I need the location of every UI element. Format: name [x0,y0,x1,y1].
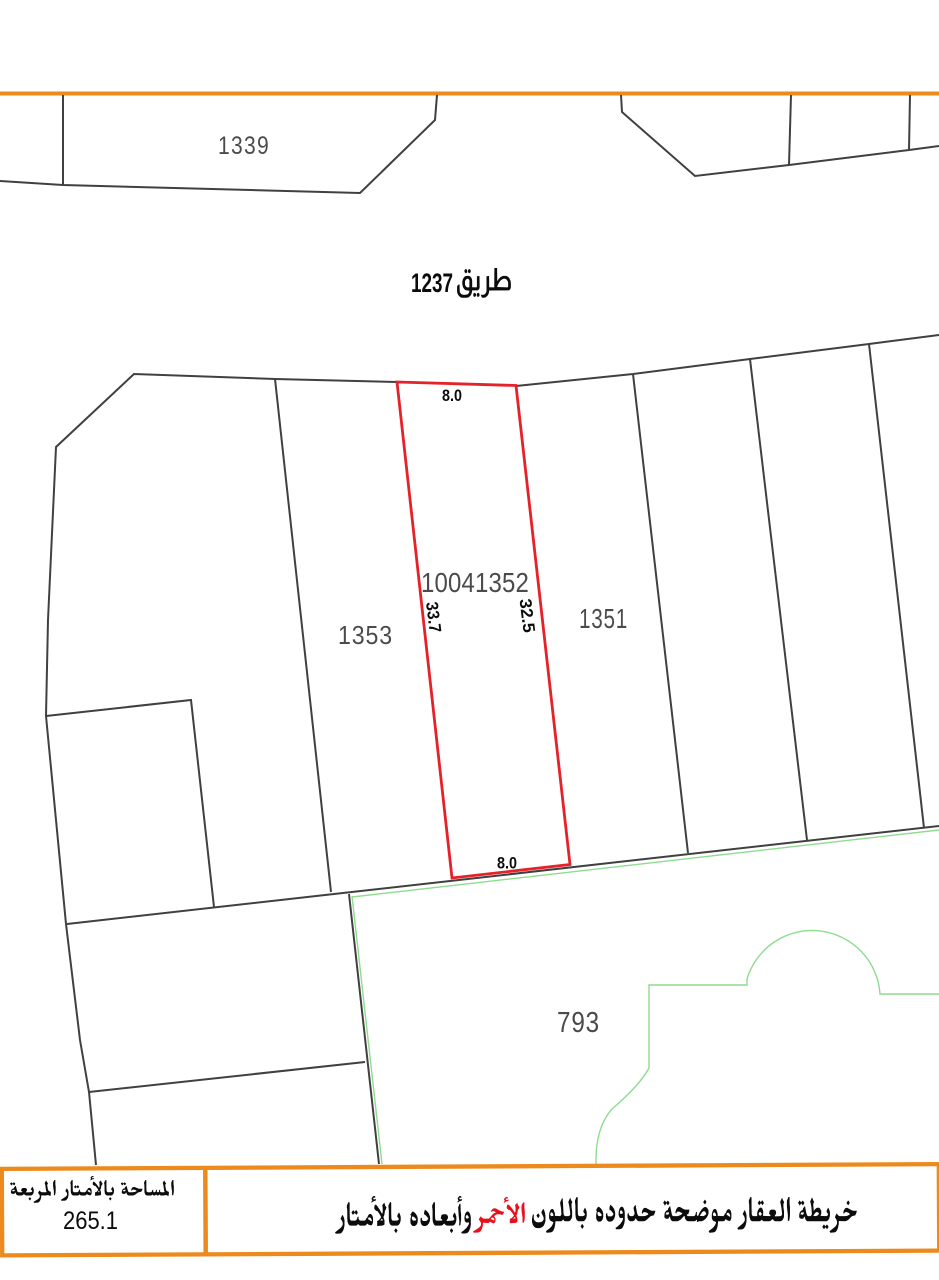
svg-text:1351: 1351 [579,603,628,634]
svg-text:10041352: 10041352 [421,567,529,598]
svg-text:793: 793 [557,1007,600,1039]
svg-text:33.7: 33.7 [422,601,445,634]
svg-text:1339: 1339 [218,132,270,160]
svg-text:1237: 1237 [411,268,453,298]
svg-text:8.0: 8.0 [442,386,462,405]
svg-text:8.0: 8.0 [497,854,517,873]
svg-text:1353: 1353 [338,620,393,650]
svg-text:32.5: 32.5 [516,598,539,634]
svg-text:265.1: 265.1 [63,1207,118,1235]
